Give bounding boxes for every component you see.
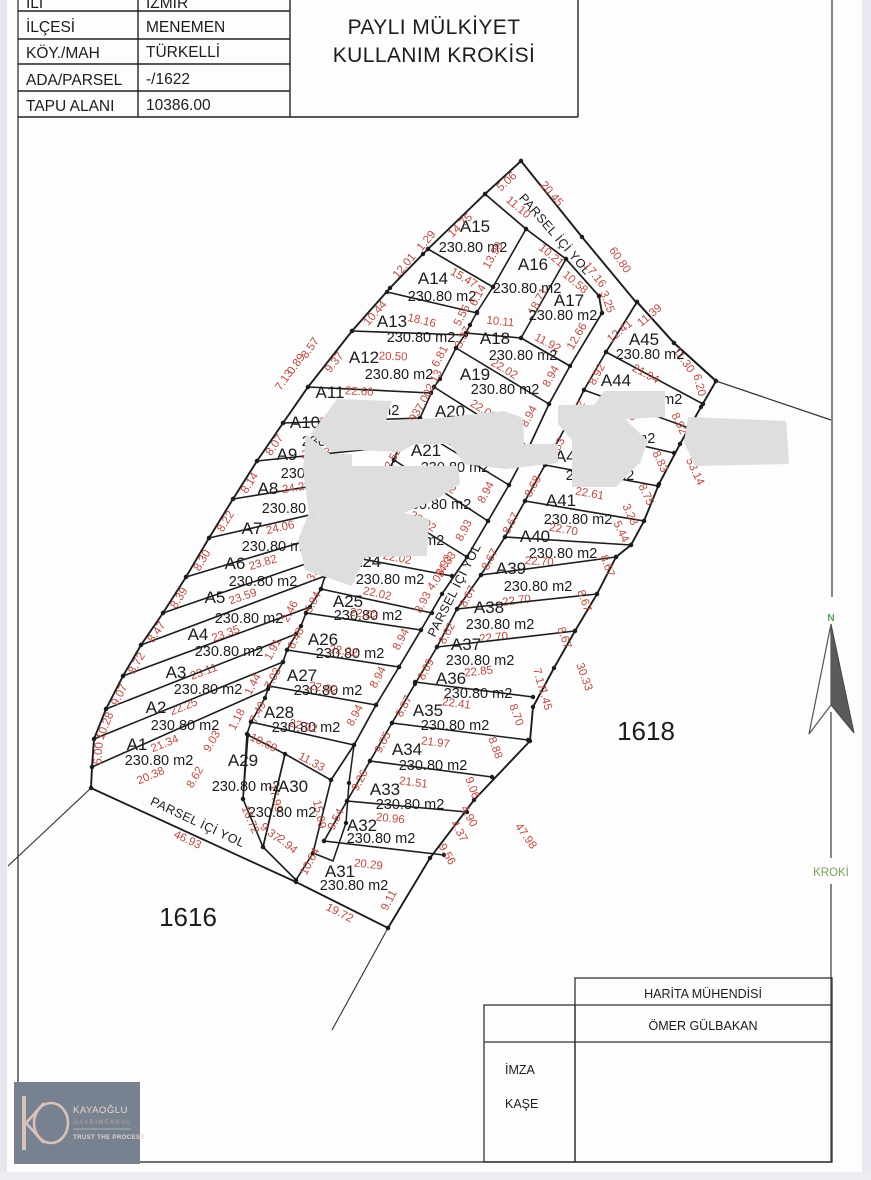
- svg-text:MENEMEN: MENEMEN: [146, 19, 225, 36]
- svg-text:9.26: 9.26: [350, 768, 371, 793]
- svg-text:230.80 m2: 230.80 m2: [616, 347, 685, 363]
- svg-text:5.00: 5.00: [92, 742, 106, 765]
- svg-text:A8: A8: [258, 479, 279, 498]
- svg-text:1.45: 1.45: [536, 687, 553, 712]
- svg-text:A6: A6: [225, 554, 246, 573]
- svg-text:A12: A12: [349, 348, 379, 367]
- svg-text:230.80 m2: 230.80 m2: [408, 289, 477, 305]
- svg-text:A39: A39: [496, 559, 526, 578]
- svg-text:20.29: 20.29: [353, 857, 383, 872]
- svg-text:A44: A44: [601, 371, 631, 390]
- svg-text:6.48: 6.48: [286, 626, 307, 651]
- svg-text:İLİ: İLİ: [26, 0, 43, 12]
- svg-text:A7: A7: [242, 519, 263, 538]
- svg-text:1.44: 1.44: [243, 671, 264, 697]
- svg-text:8.75: 8.75: [636, 482, 656, 507]
- svg-text:230.80 m2: 230.80 m2: [174, 682, 243, 698]
- svg-text:6.20: 6.20: [690, 373, 707, 398]
- svg-text:22.60: 22.60: [344, 385, 373, 398]
- svg-text:5.84: 5.84: [303, 589, 324, 615]
- svg-text:30.33: 30.33: [573, 661, 594, 692]
- svg-text:KULLANIM KROKİSİ: KULLANIM KROKİSİ: [333, 44, 535, 67]
- svg-text:230.80 m2: 230.80 m2: [529, 308, 598, 324]
- svg-text:22.41: 22.41: [441, 696, 471, 712]
- svg-text:A14: A14: [418, 269, 448, 288]
- svg-text:İZMİR: İZMİR: [146, 0, 188, 12]
- svg-text:8.68: 8.68: [523, 474, 544, 499]
- svg-text:21.34: 21.34: [149, 733, 181, 755]
- svg-text:9.37: 9.37: [323, 350, 346, 375]
- svg-text:8.72: 8.72: [126, 651, 148, 676]
- svg-text:ADA/PARSEL: ADA/PARSEL: [26, 72, 123, 89]
- svg-text:230.80 m2: 230.80 m2: [248, 805, 317, 821]
- svg-text:21.51: 21.51: [398, 775, 428, 791]
- svg-text:A18: A18: [480, 329, 510, 348]
- svg-text:23.11: 23.11: [189, 662, 219, 683]
- svg-text:8.67: 8.67: [554, 625, 573, 650]
- svg-text:24.06: 24.06: [265, 519, 296, 537]
- svg-text:8.88: 8.88: [485, 735, 504, 760]
- svg-text:230.80 m2: 230.80 m2: [493, 281, 562, 297]
- svg-text:8.83: 8.83: [650, 449, 670, 474]
- svg-text:A5: A5: [205, 588, 226, 607]
- svg-text:22.70: 22.70: [479, 631, 509, 646]
- svg-text:20.96: 20.96: [375, 812, 405, 827]
- svg-text:TAPU ALANI: TAPU ALANI: [26, 98, 114, 115]
- svg-text:9.06: 9.06: [462, 775, 481, 800]
- svg-text:KAYAOĞLU: KAYAOĞLU: [73, 1105, 128, 1116]
- svg-text:3.37: 3.37: [453, 325, 474, 350]
- svg-text:9.05: 9.05: [373, 730, 394, 755]
- svg-text:A40: A40: [520, 527, 550, 546]
- svg-text:10.28: 10.28: [95, 711, 117, 742]
- svg-text:8.93: 8.93: [454, 518, 475, 543]
- svg-text:21.97: 21.97: [420, 735, 450, 750]
- svg-text:22.61: 22.61: [574, 486, 604, 503]
- svg-text:8.70: 8.70: [506, 702, 525, 727]
- svg-text:21.94: 21.94: [630, 362, 662, 386]
- svg-text:8.94: 8.94: [391, 626, 412, 652]
- svg-text:19.72: 19.72: [324, 901, 355, 925]
- svg-text:8.87: 8.87: [394, 694, 415, 719]
- svg-text:KÖY./MAH: KÖY./MAH: [26, 44, 100, 62]
- svg-text:8.47: 8.47: [146, 620, 169, 645]
- svg-text:TÜRKELLİ: TÜRKELLİ: [146, 43, 220, 61]
- svg-text:A4: A4: [188, 625, 209, 644]
- svg-text:20.50: 20.50: [379, 351, 408, 364]
- svg-text:ÖMER GÜLBAKAN: ÖMER GÜLBAKAN: [648, 1019, 757, 1033]
- svg-text:8.67: 8.67: [574, 588, 593, 613]
- svg-text:A34: A34: [392, 740, 422, 759]
- svg-text:1.18: 1.18: [227, 707, 248, 732]
- svg-text:9.07: 9.07: [109, 683, 130, 708]
- svg-text:PAYLI MÜLKİYET: PAYLI MÜLKİYET: [348, 16, 521, 39]
- svg-text:TRUST THE PROCESS: TRUST THE PROCESS: [73, 1134, 145, 1141]
- svg-text:18.16: 18.16: [406, 312, 437, 330]
- svg-text:A29: A29: [228, 751, 258, 770]
- svg-text:8.22: 8.22: [215, 509, 237, 534]
- svg-text:A30: A30: [278, 777, 308, 796]
- svg-text:-/1622: -/1622: [146, 71, 190, 88]
- svg-text:İMZA: İMZA: [505, 1063, 536, 1077]
- svg-text:8.94: 8.94: [345, 702, 366, 728]
- svg-text:22.85: 22.85: [464, 664, 494, 679]
- svg-text:230.80 m2: 230.80 m2: [365, 367, 434, 383]
- svg-text:KROKİ: KROKİ: [813, 866, 849, 879]
- svg-text:12.01: 12.01: [391, 251, 419, 281]
- svg-text:230.80 m2: 230.80 m2: [212, 779, 281, 795]
- svg-text:5.06: 5.06: [495, 170, 520, 194]
- svg-text:1618: 1618: [617, 716, 675, 746]
- svg-text:12.66: 12.66: [565, 321, 590, 352]
- svg-text:230.80 m2: 230.80 m2: [320, 878, 389, 894]
- svg-text:8.67: 8.67: [501, 511, 522, 536]
- svg-text:11.33: 11.33: [296, 750, 326, 774]
- svg-text:GAYRIMENKUL: GAYRIMENKUL: [73, 1119, 132, 1126]
- svg-text:2.94: 2.94: [274, 833, 299, 857]
- svg-text:47.98: 47.98: [512, 821, 538, 851]
- svg-text:1616: 1616: [159, 902, 217, 932]
- svg-text:20.45: 20.45: [537, 179, 565, 209]
- svg-text:İLÇESİ: İLÇESİ: [26, 18, 75, 36]
- svg-text:230.80 m2: 230.80 m2: [504, 579, 573, 595]
- svg-text:10.11: 10.11: [486, 315, 515, 330]
- svg-text:8.39: 8.39: [168, 586, 190, 611]
- svg-text:N: N: [827, 613, 834, 624]
- svg-text:8.94: 8.94: [368, 664, 389, 690]
- svg-text:A16: A16: [518, 255, 548, 274]
- svg-text:KAŞE: KAŞE: [505, 1097, 538, 1111]
- svg-text:23.82: 23.82: [248, 553, 279, 573]
- svg-text:10386.00: 10386.00: [146, 97, 211, 114]
- svg-text:HARİTA MÜHENDİSİ: HARİTA MÜHENDİSİ: [644, 987, 762, 1001]
- svg-text:8.69: 8.69: [416, 657, 437, 682]
- svg-text:10.64: 10.64: [298, 846, 322, 878]
- svg-text:230.80 m2: 230.80 m2: [471, 382, 540, 398]
- svg-text:8.94: 8.94: [476, 479, 497, 505]
